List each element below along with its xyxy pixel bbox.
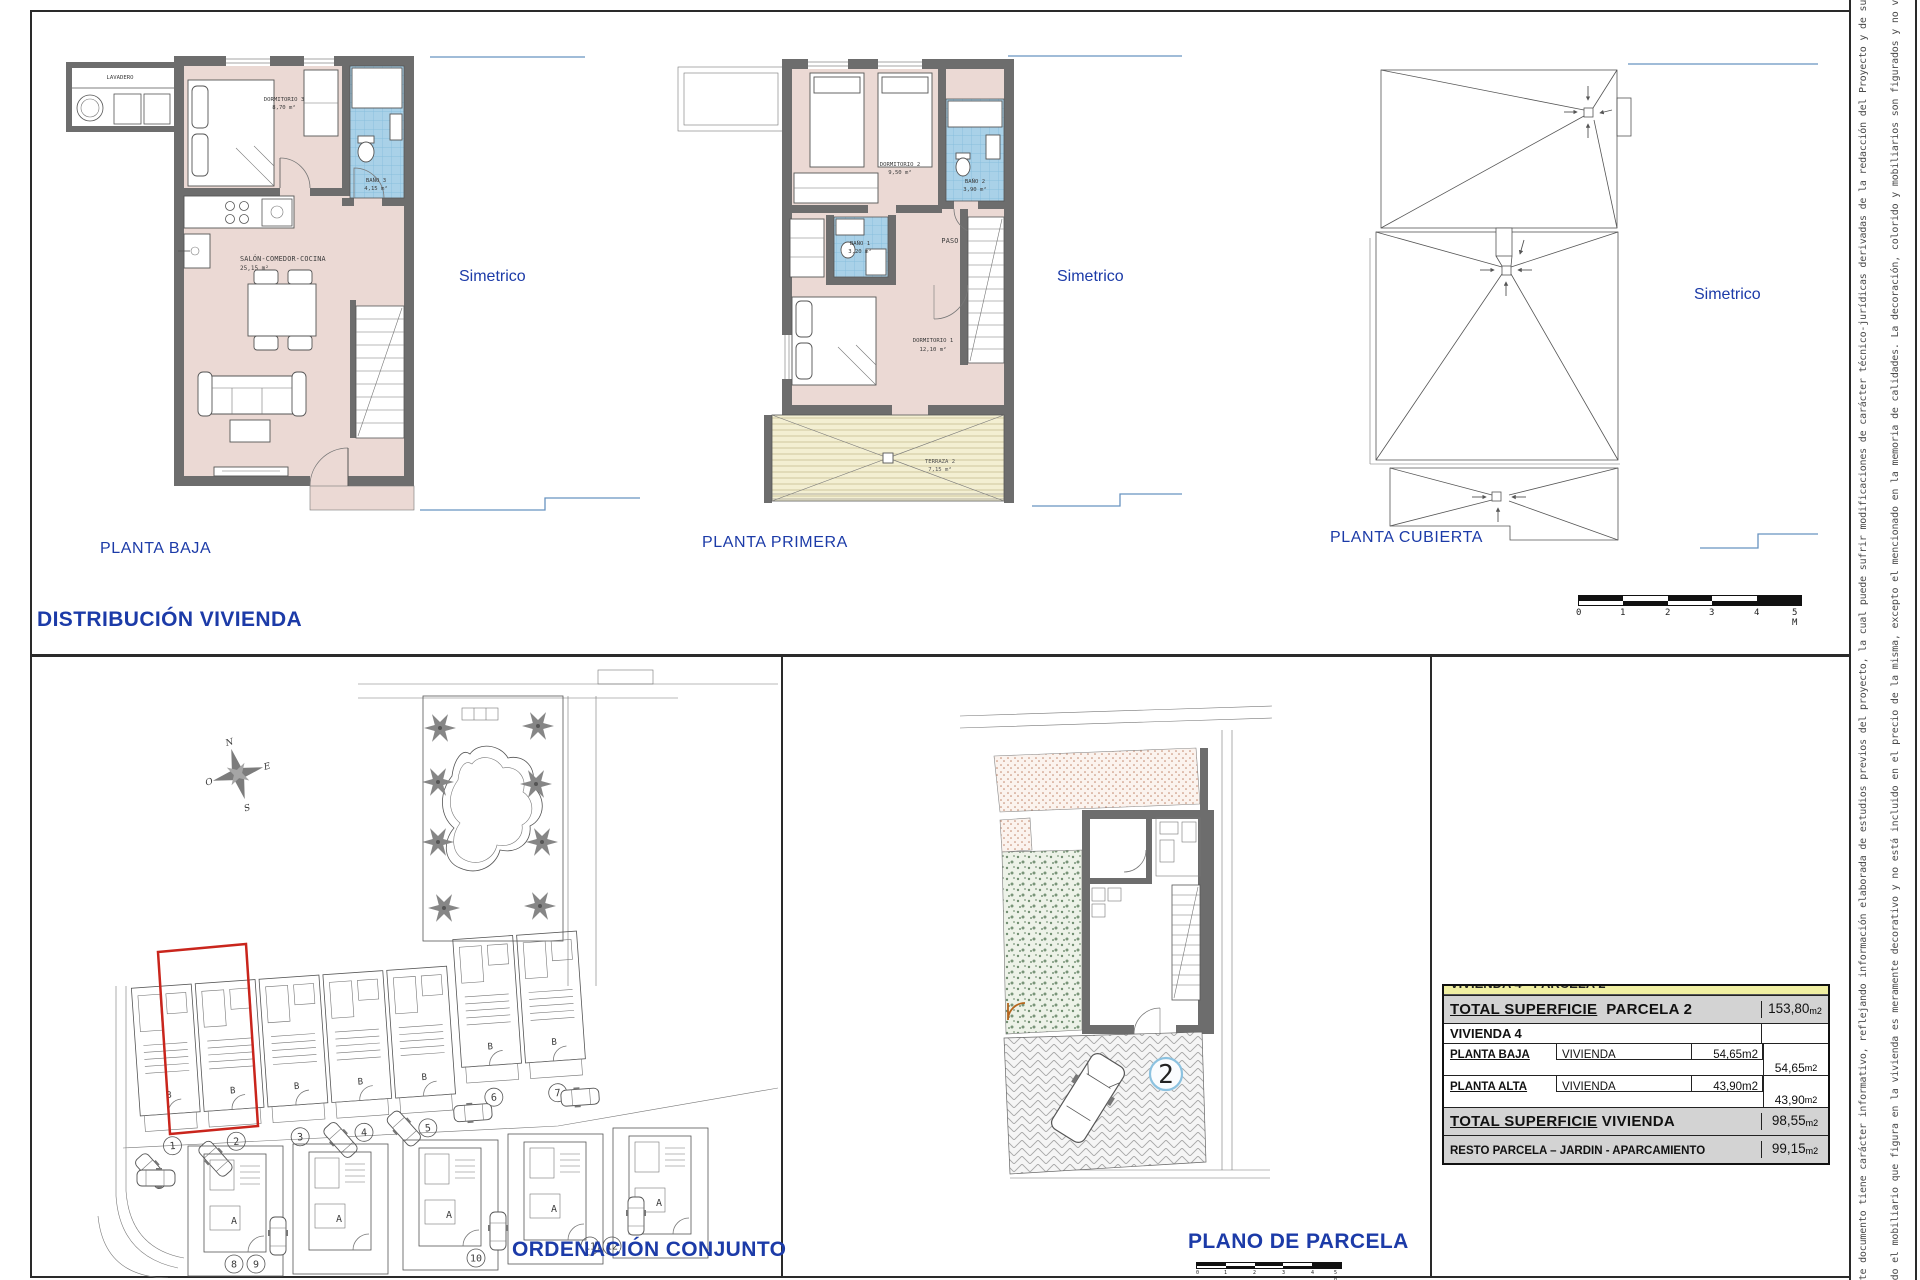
scale-tick: 2 [1253, 1270, 1256, 1276]
scale-bar-small: 0 1 2 3 4 5 M [1196, 1262, 1342, 1276]
parcel-number: 5 [425, 1123, 432, 1134]
planta-cubierta-label: PLANTA CUBIERTA [1330, 529, 1483, 547]
terraza-label: TERRAZA 2 [925, 459, 955, 465]
planta-baja-plan: LAVADERO B [58, 48, 578, 528]
roof-outline [1370, 70, 1631, 540]
scale-tick: 0 [1196, 1270, 1199, 1276]
scale-tick: 3 [1282, 1270, 1285, 1276]
frame-right-inner [1849, 0, 1851, 1280]
scale-tick: 5 M [1334, 1270, 1342, 1280]
terraza-room: TERRAZA 2 7,15 m² [772, 415, 1004, 501]
divider-vertical-2 [1430, 656, 1432, 1278]
open-terrace [678, 67, 784, 131]
bano1-label: BAÑO 1 [850, 240, 870, 247]
planta-baja-label: PLANTA BAJA [100, 540, 211, 558]
table-row-resto: RESTO PARCELA – JARDIN - APARCAMIENTO 99… [1444, 1135, 1828, 1163]
parcel-number: 9 [253, 1260, 259, 1271]
table-row-vivienda: VIVIENDA 4 [1444, 1023, 1828, 1043]
coffee-table [230, 420, 270, 442]
scale-tick: 4 [1311, 1270, 1314, 1276]
bano1-area: 3,20 m² [848, 248, 872, 255]
pool [442, 746, 542, 871]
parcel-number: 1 [169, 1141, 176, 1152]
unit-letter: B [551, 1038, 557, 1048]
pool-area [422, 696, 563, 941]
table-row-parcela: TOTAL SUPERFICIE PARCELA 2 153,80m2 [1444, 995, 1828, 1023]
parking: 2 [1004, 1032, 1206, 1174]
unit-letter: B [294, 1082, 300, 1092]
plan-sheet: LAVADERO B [0, 0, 1920, 1280]
bano3-area: 4,15 m² [364, 185, 388, 192]
frame-right-outer [1915, 0, 1917, 1280]
roads [98, 670, 778, 1278]
terraza-area: 7,15 m² [928, 466, 952, 473]
planta-cubierta-plan [1278, 40, 1728, 552]
ordenacion-title: ORDENACIÓN CONJUNTO [512, 1238, 786, 1262]
row-label: TOTAL SUPERFICIE [1450, 1001, 1597, 1018]
dormitorio1-area: 12,10 m² [920, 346, 947, 353]
lavadero-room: LAVADERO [66, 62, 174, 132]
parcel-number: 8 [231, 1260, 237, 1271]
bano3-label: BAÑO 3 [366, 177, 386, 184]
site-plan: N E S O B B B B B B B [38, 656, 778, 1278]
sofa [200, 376, 304, 414]
parcel-number: 4 [361, 1128, 368, 1139]
dormitorio1-label: DORMITORIO 1 [913, 338, 953, 344]
frame-left [30, 10, 32, 1278]
table-row-planta-alta: PLANTA ALTA VIVIENDA 43,90m2 43,90m2 [1444, 1075, 1828, 1107]
stippled-area [994, 748, 1200, 812]
salon-label: SALÓN-COMEDOR-COCINA [240, 254, 326, 263]
simetrico-label-1: Simetrico [459, 268, 526, 286]
compass-o: O [204, 777, 214, 789]
bano2-label: BAÑO 2 [965, 178, 985, 185]
highlighted-parcel-2 [158, 944, 258, 1134]
surface-table: VIVIENDA 4 - PARCELA 2 TOTAL SUPERFICIE … [1442, 984, 1830, 1165]
upper-house-row: B B B B B B B 1 2 3 4 5 6 7 [118, 930, 604, 1193]
stairs [968, 217, 1004, 363]
stairs [356, 306, 404, 438]
planta-primera-label: PLANTA PRIMERA [702, 534, 848, 552]
unit-letter: A [336, 1214, 342, 1225]
scale-tick: 0 [1576, 608, 1581, 618]
parcel-number: 6 [491, 1092, 498, 1103]
unit-letter: B [357, 1077, 363, 1087]
dormitorio3-area: 8,70 m² [272, 104, 296, 111]
wardrobe [790, 219, 824, 277]
unit-letter: A [231, 1216, 237, 1227]
simetrico-label-2: Simetrico [1057, 268, 1124, 286]
drain-arrows [1472, 86, 1612, 522]
dormitorio2-label: DORMITORIO 2 [880, 162, 920, 168]
table-row-total-vivienda: TOTAL SUPERFICIE VIVIENDA 98,55m2 [1444, 1107, 1828, 1135]
table-clipped-header: VIVIENDA 4 - PARCELA 2 [1444, 986, 1828, 995]
parcel-plan: 2 [950, 700, 1280, 1180]
unit-letter: B [487, 1042, 493, 1052]
toilet [358, 142, 374, 162]
dining-table [248, 284, 316, 336]
disclaimer-line-1: Este documento tiene carácter informativ… [1858, 0, 1869, 1280]
bano1-room: BAÑO 1 3,20 m² [790, 217, 888, 277]
divider-vertical-1 [781, 656, 783, 1278]
unit-letter: A [551, 1204, 557, 1215]
parcel-number: 7 [554, 1088, 561, 1099]
frame-top [30, 10, 1850, 12]
table-row-planta-baja: PLANTA BAJA VIVIENDA 54,65m2 54,65m2 [1444, 1043, 1828, 1075]
shower [352, 68, 402, 108]
row-label: VIVIENDA 4 [1450, 1026, 1522, 1041]
compass-rose: N E S O [196, 730, 281, 823]
row-label-2: PARCELA 2 [1606, 1001, 1692, 1018]
scale-tick: 1 [1620, 608, 1625, 618]
bano3-room: BAÑO 3 4,15 m² [350, 66, 404, 198]
scale-tick: 3 [1709, 608, 1714, 618]
scale-tick: 1 [1224, 1270, 1227, 1276]
unit-letter: B [421, 1073, 427, 1083]
compass-s: S [243, 803, 252, 814]
unit-letter: A [656, 1198, 662, 1209]
planta-primera-plan: DORMITORIO 2 9,50 m² BAÑO 2 3,90 m² BAÑO… [638, 45, 1058, 525]
simetrico-label-3: Simetrico [1694, 286, 1761, 304]
disclaimer-line-2: Todo el mobiliario que figura en la vivi… [1890, 0, 1901, 1280]
row-value: 153,80 [1768, 1001, 1809, 1016]
dormitorio3-label: DORMITORIO 3 [264, 97, 304, 103]
compass-n: N [224, 737, 236, 749]
stippled-strip [1000, 818, 1032, 852]
lavadero-label: LAVADERO [107, 75, 135, 81]
parcel-number: 3 [297, 1132, 304, 1143]
parcel-number: 2 [1158, 1060, 1174, 1090]
dormitorio2-area: 9,50 m² [888, 169, 912, 176]
scale-tick: 5 M [1792, 608, 1802, 628]
kitchen-counter [184, 196, 294, 228]
distribucion-title: DISTRIBUCIÓN VIVIENDA [37, 608, 302, 632]
compass-e: E [262, 761, 272, 773]
tv-unit [214, 467, 288, 476]
scale-tick: 2 [1665, 608, 1670, 618]
sink [390, 114, 402, 140]
scale-tick: 4 [1754, 608, 1759, 618]
paso-label: PASO [941, 237, 958, 245]
unit-letter: A [446, 1210, 452, 1221]
unit-letter: B [230, 1086, 236, 1096]
scale-bar: 0 1 2 3 4 5 M [1578, 595, 1802, 621]
bano2-area: 3,90 m² [963, 186, 987, 193]
porch [310, 486, 414, 510]
plano-parcela-title: PLANO DE PARCELA [1188, 1230, 1409, 1254]
parcel-number: 10 [470, 1254, 482, 1265]
stairs [1172, 885, 1200, 1000]
